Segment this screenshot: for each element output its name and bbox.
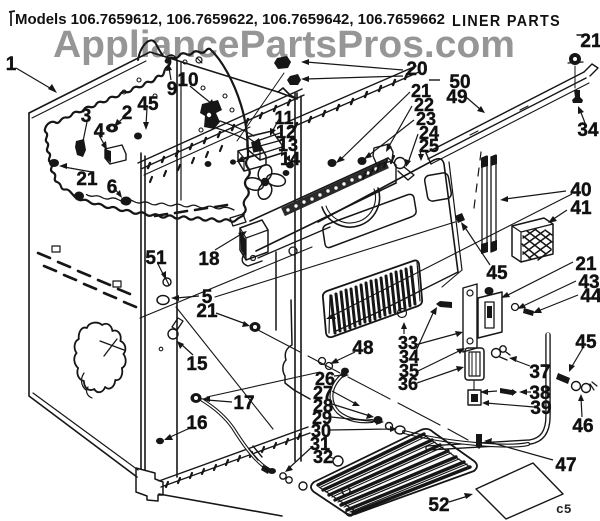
svg-text:1: 1 xyxy=(6,54,17,75)
svg-text:37: 37 xyxy=(529,362,550,383)
svg-text:45: 45 xyxy=(137,94,159,115)
svg-text:17: 17 xyxy=(233,393,254,414)
svg-text:20: 20 xyxy=(406,59,427,80)
svg-text:LINER PARTS: LINER PARTS xyxy=(452,13,561,30)
svg-text:3: 3 xyxy=(81,106,92,127)
svg-text:c5: c5 xyxy=(556,502,572,517)
svg-text:48: 48 xyxy=(352,338,373,359)
svg-text:36: 36 xyxy=(398,374,418,394)
svg-text:15: 15 xyxy=(186,354,208,375)
svg-text:34: 34 xyxy=(577,120,599,141)
svg-text:Models 106.7659612, 106.765962: Models 106.7659612, 106.7659622, 106.765… xyxy=(15,11,445,28)
svg-text:32: 32 xyxy=(313,447,333,467)
svg-text:21: 21 xyxy=(580,31,600,52)
svg-text:39: 39 xyxy=(530,398,551,419)
svg-text:45: 45 xyxy=(575,332,597,353)
svg-text:49: 49 xyxy=(446,87,467,108)
svg-text:51: 51 xyxy=(145,248,167,269)
svg-text:52: 52 xyxy=(428,495,449,516)
svg-text:18: 18 xyxy=(198,249,219,270)
svg-text:16: 16 xyxy=(186,413,207,434)
svg-text:41: 41 xyxy=(570,198,592,219)
svg-text:47: 47 xyxy=(555,455,576,476)
svg-text:21: 21 xyxy=(76,169,98,190)
svg-text:46: 46 xyxy=(572,416,593,437)
svg-text:10: 10 xyxy=(177,70,198,91)
svg-text:4: 4 xyxy=(94,121,105,142)
svg-text:9: 9 xyxy=(167,79,178,100)
svg-text:2: 2 xyxy=(122,103,133,124)
svg-text:25: 25 xyxy=(419,136,439,156)
svg-text:44: 44 xyxy=(580,286,600,307)
svg-text:45: 45 xyxy=(486,263,508,284)
svg-text:14: 14 xyxy=(280,149,300,169)
svg-text:6: 6 xyxy=(107,177,118,198)
svg-text:21: 21 xyxy=(196,301,218,322)
